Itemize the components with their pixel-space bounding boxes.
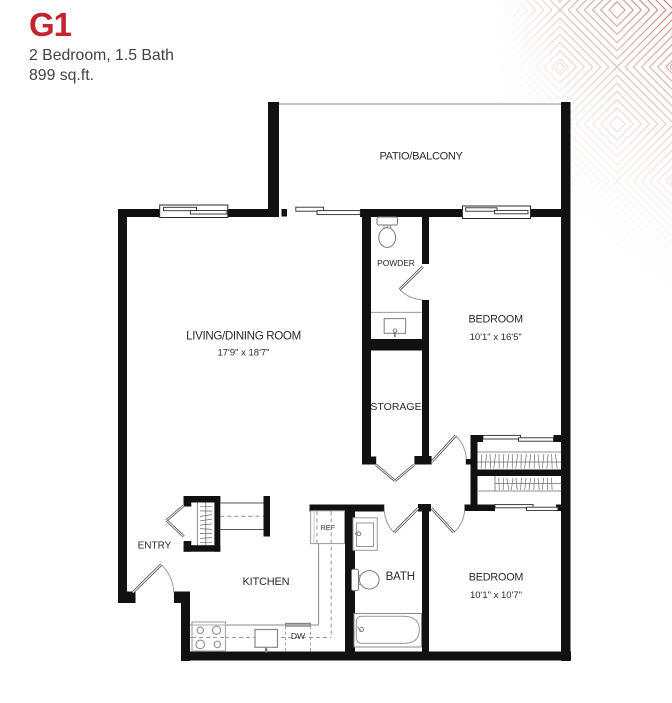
- svg-text:POWDER: POWDER: [377, 258, 415, 268]
- svg-text:BEDROOM: BEDROOM: [469, 572, 524, 584]
- svg-text:BATH: BATH: [386, 571, 415, 583]
- svg-text:REF: REF: [321, 523, 336, 532]
- svg-text:10'1" x 16'5": 10'1" x 16'5": [470, 332, 522, 343]
- svg-text:KITCHEN: KITCHEN: [243, 576, 290, 588]
- svg-text:DW: DW: [291, 631, 306, 641]
- svg-text:STORAGE: STORAGE: [370, 401, 421, 413]
- svg-text:10'1" x 10'7": 10'1" x 10'7": [470, 590, 522, 601]
- svg-text:BEDROOM: BEDROOM: [469, 314, 524, 326]
- svg-text:LIVING/DINING ROOM: LIVING/DINING ROOM: [186, 330, 301, 343]
- svg-text:PATIO/BALCONY: PATIO/BALCONY: [379, 151, 463, 163]
- svg-text:ENTRY: ENTRY: [138, 541, 172, 552]
- svg-text:17'9" x 18'7": 17'9" x 18'7": [217, 348, 269, 359]
